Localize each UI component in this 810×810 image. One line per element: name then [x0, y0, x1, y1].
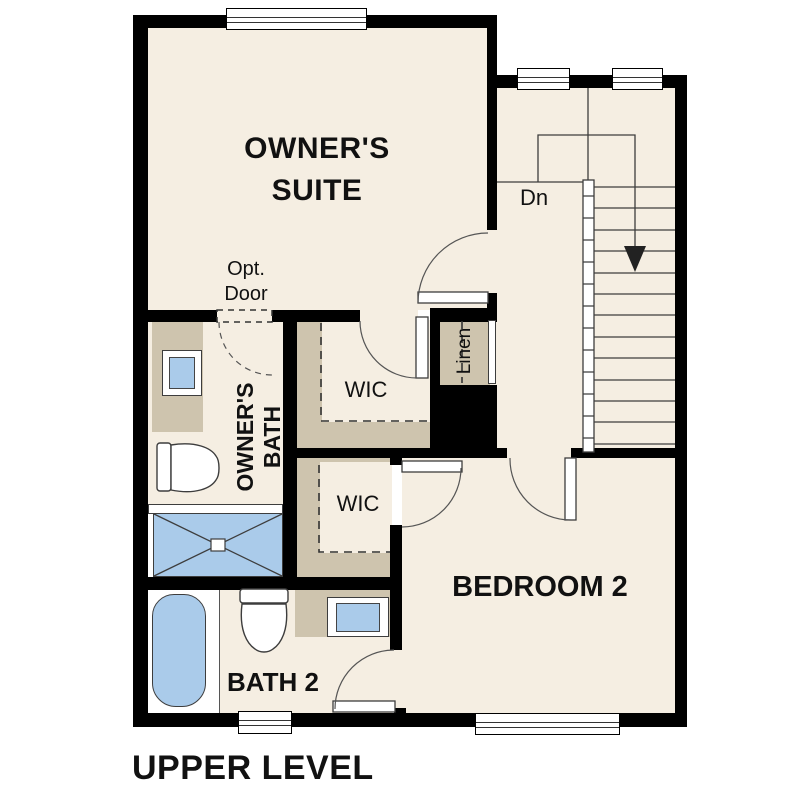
wall — [394, 708, 406, 718]
bedroom2-door-opening — [507, 448, 571, 458]
wall — [430, 318, 440, 388]
window — [226, 8, 367, 30]
window-mullion — [613, 77, 662, 78]
window-mullion — [518, 82, 569, 83]
linen-cased-opening — [488, 320, 496, 384]
hall-stair-floor — [497, 88, 675, 448]
owners-bath-label: OWNER'SBATH — [232, 362, 286, 512]
bath2-label: BATH 2 — [218, 668, 328, 698]
window-mullion — [227, 17, 366, 18]
owners-bath-label-line1: OWNER'S — [232, 362, 259, 512]
window-mullion — [239, 725, 291, 726]
wall — [571, 448, 687, 458]
wall — [148, 310, 217, 322]
shower — [153, 513, 283, 577]
window — [517, 68, 570, 90]
owners-bath-label-line2: BATH — [259, 362, 286, 512]
window-mullion — [239, 720, 291, 721]
window — [475, 713, 620, 735]
owners-suite-label: OWNER'S SUITE — [217, 128, 417, 212]
bath2-sink — [336, 603, 380, 632]
window-mullion — [476, 722, 619, 723]
window-mullion — [227, 22, 366, 23]
window-mullion — [476, 727, 619, 728]
window — [612, 68, 663, 90]
optional-door-label-line2: Door — [209, 282, 283, 307]
linen-label: Linen — [454, 311, 478, 391]
window-mullion — [613, 82, 662, 83]
optional-door-label-line1: Opt. — [209, 257, 283, 282]
stairs-down-label: Dn — [520, 185, 548, 210]
wic-upper-floor — [322, 320, 430, 422]
opt-door-opening — [217, 310, 272, 322]
bedroom2-label: BEDROOM 2 — [420, 571, 660, 604]
optional-door-label: Opt.Door — [209, 257, 283, 307]
owners-bath-sink — [169, 357, 195, 389]
wic-lower-label: WIC — [322, 491, 394, 516]
wic-upper-label: WIC — [330, 377, 402, 402]
bath2-door-opening — [392, 650, 402, 708]
wall — [487, 15, 497, 230]
window — [238, 711, 292, 734]
page-title: UPPER LEVEL — [132, 749, 374, 788]
bathtub — [152, 594, 206, 707]
wall-mass — [430, 385, 497, 453]
wall — [390, 448, 402, 465]
wall — [675, 75, 687, 727]
owners-suite-door-opening — [487, 230, 497, 293]
window-mullion — [518, 77, 569, 78]
floor-plan: OWNER'S SUITE OWNER'SBATH WIC WIC Linen … — [0, 0, 810, 810]
wall — [272, 310, 360, 322]
wall — [133, 15, 148, 727]
wall — [133, 577, 395, 590]
